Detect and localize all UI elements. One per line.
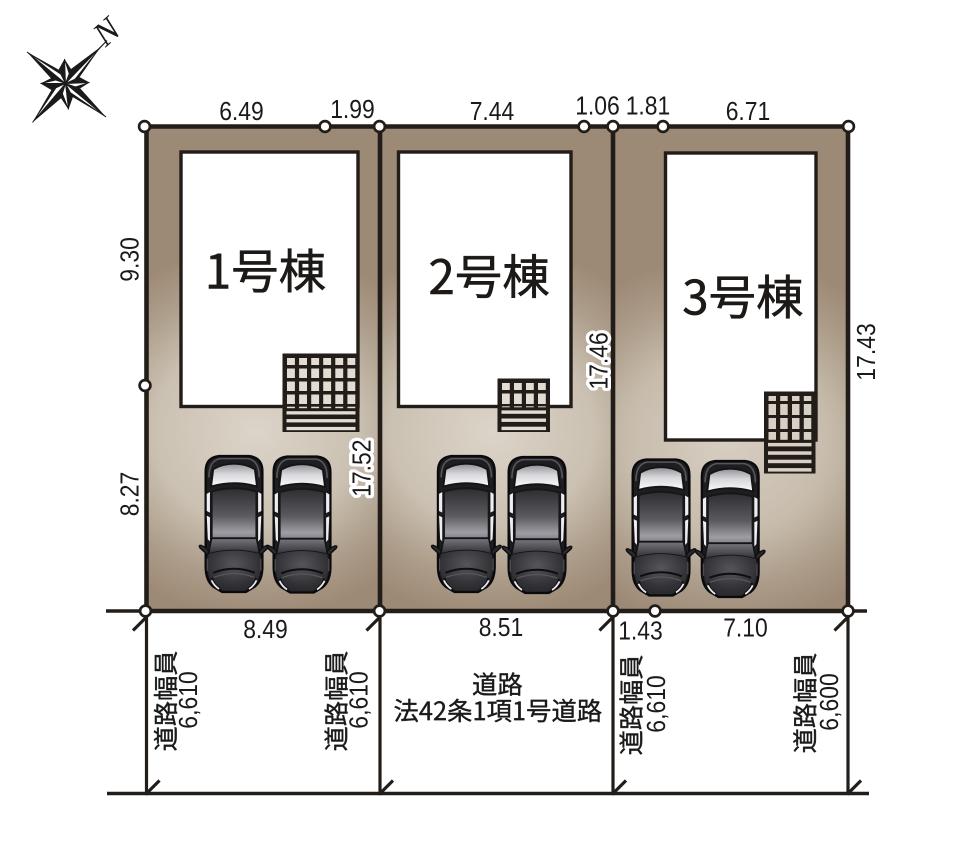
svg-text:6.71: 6.71	[726, 98, 771, 126]
svg-text:17.46: 17.46	[585, 332, 613, 389]
svg-text:6,610: 6,610	[643, 675, 671, 732]
svg-text:17.52: 17.52	[349, 440, 377, 497]
svg-text:6,600: 6,600	[816, 673, 844, 730]
svg-text:6,610: 6,610	[175, 671, 203, 728]
svg-text:6.49: 6.49	[219, 98, 264, 126]
svg-text:1.81: 1.81	[626, 93, 671, 121]
svg-text:17.43: 17.43	[853, 323, 881, 380]
svg-text:1.43: 1.43	[618, 618, 663, 646]
svg-text:7.10: 7.10	[723, 615, 768, 643]
svg-text:8.51: 8.51	[479, 614, 524, 642]
svg-text:9.30: 9.30	[117, 237, 145, 282]
svg-text:1.99: 1.99	[330, 96, 375, 124]
svg-text:1.06: 1.06	[575, 93, 620, 121]
svg-text:7.44: 7.44	[470, 98, 515, 126]
svg-text:6,610: 6,610	[346, 671, 374, 728]
svg-text:8.27: 8.27	[117, 472, 145, 517]
svg-text:8.49: 8.49	[243, 616, 288, 644]
